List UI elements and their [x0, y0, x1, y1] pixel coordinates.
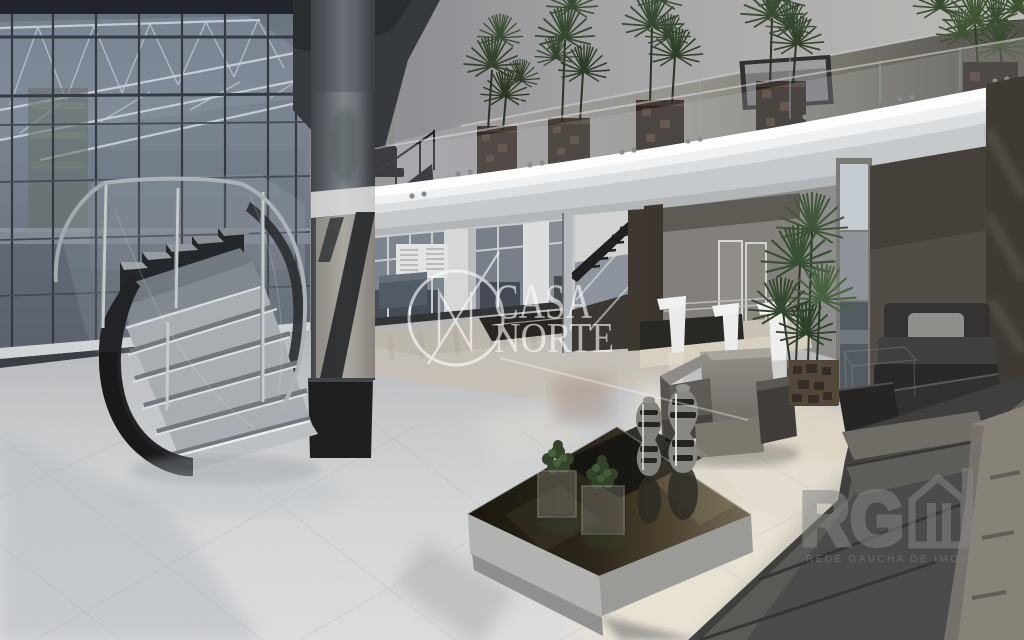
- svg-text:NORTE: NORTE: [494, 316, 614, 362]
- svg-text:RG: RG: [800, 477, 904, 562]
- svg-text:REDE GAUCHA DE IMOVEIS: REDE GAUCHA DE IMOVEIS: [806, 554, 993, 565]
